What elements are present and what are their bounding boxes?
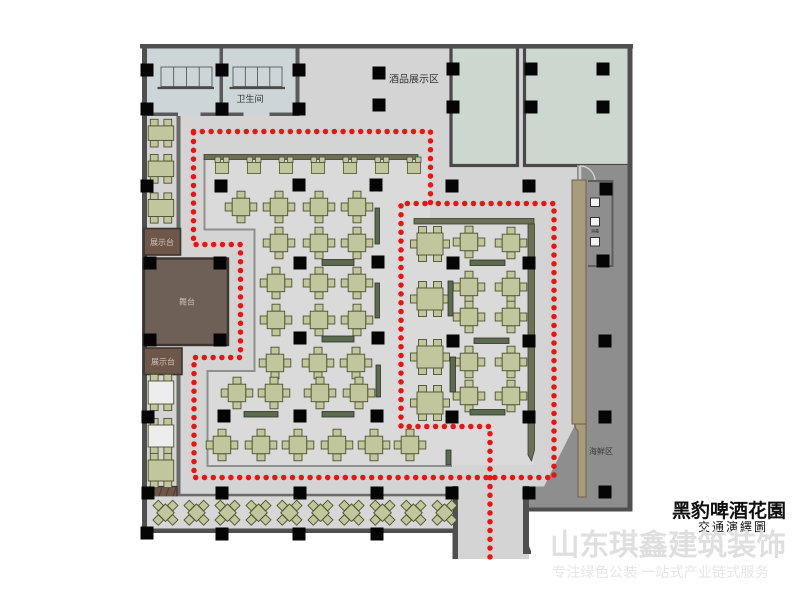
svg-text:专注绿色公装 一站式产业链式服务: 专注绿色公装 一站式产业链式服务: [552, 564, 769, 581]
svg-text:山东琪鑫建筑装饰: 山东琪鑫建筑装饰: [550, 528, 786, 562]
svg-text:酒品展示区: 酒品展示区: [389, 74, 439, 86]
svg-text:海鲜区: 海鲜区: [589, 446, 613, 456]
svg-text:卫生间: 卫生间: [236, 93, 263, 104]
svg-text:舞台: 舞台: [179, 297, 195, 307]
svg-text:展示台: 展示台: [150, 237, 174, 247]
svg-text:消毒: 消毒: [591, 228, 599, 234]
svg-text:展示台: 展示台: [151, 357, 175, 367]
svg-text:黑豹啤酒花園: 黑豹啤酒花園: [672, 499, 786, 522]
